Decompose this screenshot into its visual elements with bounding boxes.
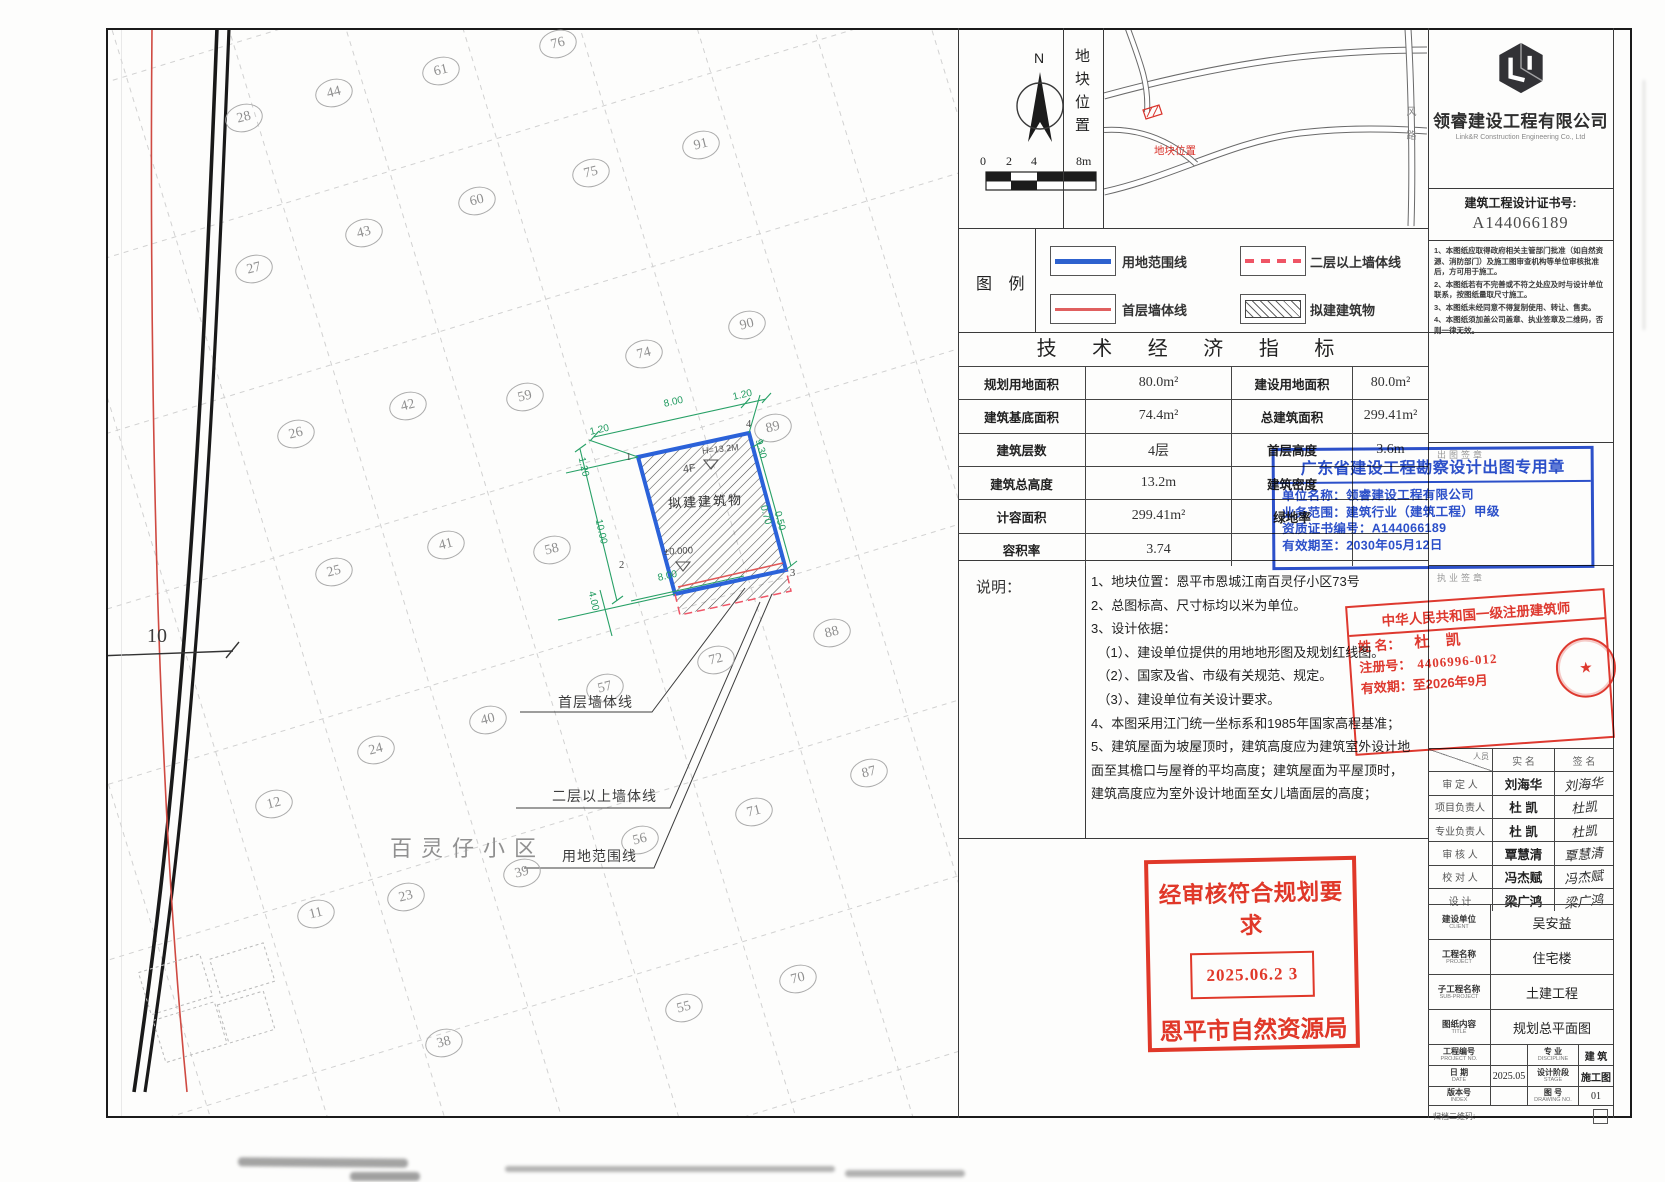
project-row-label: 图纸内容TITLE	[1428, 1010, 1491, 1044]
indicator-label: 总建筑面积	[1232, 400, 1353, 432]
drawing-sheet: 2844617627436075912642597490892541588824…	[0, 0, 1665, 1182]
role-label: 审 定 人	[1428, 772, 1493, 794]
signature-row: 项目负责人 杜 凯 杜凯	[1428, 796, 1613, 819]
sheet-inner-margin-line	[121, 30, 122, 1116]
project-row-label: 工程名称PROJECT	[1428, 940, 1491, 974]
handwritten-signature: 刘海华	[1555, 772, 1613, 794]
divider	[1428, 240, 1613, 241]
signature-header-row: 人员 实 名 签 名	[1428, 749, 1613, 772]
indicator-label: 计容面积	[958, 500, 1086, 532]
company-notices: 1、本图纸应取得政府相关主管部门批准（如自然资源、消防部门）及施工图审查机构等单…	[1434, 246, 1608, 338]
callout-first-floor-wall: 首层墙体线	[558, 692, 633, 712]
signature-row: 专业负责人 杜 凯 杜凯	[1428, 819, 1613, 842]
legend-title: 图 例	[976, 270, 1030, 294]
role-label: 项目负责人	[1428, 796, 1493, 818]
scale-tick: 2	[1006, 154, 1012, 169]
project-row-value: 土建工程	[1491, 975, 1613, 1009]
indicator-value: 80.0m²	[1353, 367, 1428, 399]
person-name: 冯杰赋	[1493, 866, 1555, 888]
indicator-label: 建筑层数	[958, 434, 1086, 466]
archive-qr-label: 归档二维码:	[1433, 1111, 1475, 1122]
indicators-row: 建筑基底面积 74.4m² 总建筑面积 299.41m²	[958, 400, 1428, 433]
legend-swatch-proposed-building	[1240, 294, 1306, 324]
blue-design-seal: 广东省建设工程勘察设计出图专用章 单位名称：领睿建设工程有限公司业务范围：建筑行…	[1272, 446, 1595, 570]
col-header-name: 实 名	[1493, 749, 1555, 771]
company-name-en: Link&R Construction Engineering Co., Ltd	[1428, 134, 1613, 141]
planning-approval-stamp: 经审核符合规划要求 2025.06.2 3 恩平市自然资源局	[1144, 856, 1360, 1052]
indicator-value: 299.41m²	[1086, 500, 1232, 532]
building-name-label: 拟建建筑物	[668, 489, 744, 512]
project-row: 工程名称PROJECT 住宅楼	[1428, 940, 1613, 975]
signature-row: 审 核 人 覃慧清 覃慧清	[1428, 842, 1613, 865]
col-header-signature: 签 名	[1555, 749, 1613, 771]
note-line: 1、地块位置：恩平市恩城江南百灵仔小区73号	[1091, 570, 1421, 594]
signature-table: 人员 实 名 签 名 审 定 人 刘海华 刘海华 项目负责人 杜 凯 杜凯 专业…	[1428, 748, 1613, 905]
map-plot-location-label: 地块位置	[1154, 143, 1196, 158]
project-row: 建设单位CLIENT 吴安益	[1428, 905, 1613, 940]
note-line: 面至其檐口与屋脊的平均高度；建筑屋面为平屋顶时，	[1091, 759, 1421, 783]
role-label: 专业负责人	[1428, 819, 1493, 841]
grid-row-project-no: 工程编号PROJECT NO. 专 业DISCIPLINE 建 筑	[1428, 1045, 1613, 1066]
project-title-block: 建设单位CLIENT 吴安益 工程名称PROJECT 住宅楼 子工程名称SUB-…	[1428, 904, 1613, 1119]
planning-stamp-date: 2025.06.2 3	[1190, 951, 1315, 1000]
scan-edge-line	[1643, 80, 1645, 330]
scan-smudge	[845, 1170, 965, 1177]
project-row: 子工程名称SUB-PROJECT 土建工程	[1428, 975, 1613, 1010]
signature-row: 校 对 人 冯杰赋 冯杰赋	[1428, 866, 1613, 889]
project-row-value: 吴安益	[1491, 905, 1613, 939]
divider	[1063, 28, 1064, 228]
notes-label: 说明：	[976, 576, 1021, 597]
legend-label: 用地范围线	[1122, 252, 1187, 271]
archive-qr-row: 归档二维码:	[1428, 1106, 1613, 1126]
indicator-value: 299.41m²	[1353, 400, 1428, 432]
blue-seal-line: 有效期至：2030年05月12日	[1275, 535, 1591, 554]
road-width-label: 10	[147, 625, 167, 648]
project-row-label: 建设单位CLIENT	[1428, 905, 1491, 939]
legend-swatch-upper-wall	[1240, 246, 1306, 276]
scale-tick: 4	[1031, 154, 1037, 169]
indicator-label: 建筑基底面积	[958, 400, 1086, 432]
divider	[1428, 442, 1613, 443]
person-name: 刘海华	[1493, 772, 1555, 794]
legend-label: 拟建建筑物	[1310, 300, 1375, 319]
corner-number: 2	[619, 560, 624, 571]
indicators-row: 规划用地面积 80.0m² 建设用地面积 80.0m²	[958, 367, 1428, 400]
section-label-plot-location: 地块位置	[1071, 48, 1092, 198]
divider	[1103, 28, 1104, 228]
scan-smudge	[238, 1157, 408, 1167]
handwritten-signature: 覃慧清	[1555, 842, 1613, 864]
corner-number: 3	[790, 568, 795, 579]
divider	[1428, 188, 1613, 189]
architect-registration-seal: 中华人民共和国一级注册建筑师 姓 名：杜 凯 注册号：4406996-012 有…	[1345, 588, 1615, 756]
legend: 图 例 用地范围线 二层以上墙体线 首层墙体线 拟建建筑物	[958, 228, 1428, 332]
person-name: 覃慧清	[1493, 842, 1555, 864]
indicators-title: 技 术 经 济 指 标	[958, 332, 1428, 367]
planning-stamp-line1: 经审核符合规划要求	[1148, 874, 1353, 942]
legend-swatch-plot-boundary	[1050, 246, 1116, 276]
legend-swatch-first-floor-wall	[1050, 294, 1116, 324]
legend-label: 二层以上墙体线	[1310, 252, 1401, 271]
grid-row-index: 版本号INDEX 图 号DRAWING NO. 01	[1428, 1087, 1613, 1106]
callout-plot-boundary: 用地范围线	[562, 846, 637, 866]
company-notice: 3、本图纸未经同意不得复制使用、转让、售卖。	[1434, 303, 1608, 314]
handwritten-signature: 杜凯	[1555, 796, 1613, 818]
zhiye-seal-cell-label: 执业签章	[1437, 571, 1485, 584]
legend-label: 首层墙体线	[1122, 300, 1187, 319]
company-notice: 1、本图纸应取得政府相关主管部门批准（如自然资源、消防部门）及施工图审查机构等单…	[1434, 246, 1608, 278]
corner-number: 4	[746, 419, 751, 430]
role-label: 校 对 人	[1428, 866, 1493, 888]
indicator-label: 建设用地面积	[1232, 367, 1353, 399]
building-level-label: ±0.000	[664, 545, 694, 558]
map-road-label: 风路	[1402, 106, 1417, 186]
divider	[958, 838, 1428, 839]
project-row-label: 子工程名称SUB-PROJECT	[1428, 975, 1491, 1009]
certificate-number: A144066189	[1428, 213, 1613, 233]
grid-row-date: 日 期DATE 2025.05 设计阶段STAGE 施工图	[1428, 1066, 1613, 1087]
district-label: 百灵仔小区	[390, 831, 545, 863]
signature-row: 审 定 人 刘海华 刘海华	[1428, 772, 1613, 795]
diagonal-header-cell: 人员	[1428, 749, 1493, 771]
handwritten-signature: 冯杰赋	[1555, 866, 1613, 888]
project-row-value: 住宅楼	[1491, 940, 1613, 974]
note-line: 建筑高度应为室外设计地面至女儿墙面层的高度；	[1091, 782, 1421, 806]
scan-smudge	[505, 1166, 835, 1172]
project-row-value: 规划总平面图	[1491, 1010, 1613, 1044]
person-name: 杜 凯	[1493, 819, 1555, 841]
company-notice: 2、本图纸若有不完善或不符之处应及时与设计单位联系，按图纸量取尺寸施工。	[1434, 280, 1608, 301]
building-floors-label: 4F	[682, 462, 696, 476]
indicator-value: 13.2m	[1086, 467, 1232, 499]
certificate-block: 建筑工程设计证书号: A144066189	[1428, 194, 1613, 233]
divider	[1613, 28, 1614, 1118]
indicator-value: 4层	[1086, 434, 1232, 466]
company-block: 领睿建设工程有限公司 Link&R Construction Engineeri…	[1428, 28, 1613, 188]
company-name: 领睿建设工程有限公司	[1428, 107, 1613, 132]
north-label: N	[1034, 50, 1044, 66]
role-label: 审 核 人	[1428, 842, 1493, 864]
project-row: 图纸内容TITLE 规划总平面图	[1428, 1010, 1613, 1045]
indicator-label: 建筑总高度	[958, 467, 1086, 499]
indicator-value: 80.0m²	[1086, 367, 1232, 399]
indicator-label: 规划用地面积	[958, 367, 1086, 399]
planning-stamp-line2: 恩平市自然资源局	[1151, 1009, 1356, 1047]
blue-seal-title: 广东省建设工程勘察设计出图专用章	[1275, 449, 1591, 484]
company-notice: 4、本图纸须加盖公司盖章、执业签章及二维码，否则一律无效。	[1434, 315, 1608, 336]
scale-tick: 0	[980, 154, 986, 169]
handwritten-signature: 杜凯	[1555, 819, 1613, 841]
company-logo-icon	[1428, 40, 1613, 101]
certificate-label: 建筑工程设计证书号:	[1428, 194, 1613, 211]
callout-upper-wall: 二层以上墙体线	[552, 786, 657, 806]
scan-smudge	[350, 1172, 420, 1181]
person-name: 杜 凯	[1493, 796, 1555, 818]
indicator-value: 74.4m²	[1086, 400, 1232, 432]
corner-number: 1	[626, 452, 631, 463]
archive-qr-box	[1593, 1109, 1608, 1124]
